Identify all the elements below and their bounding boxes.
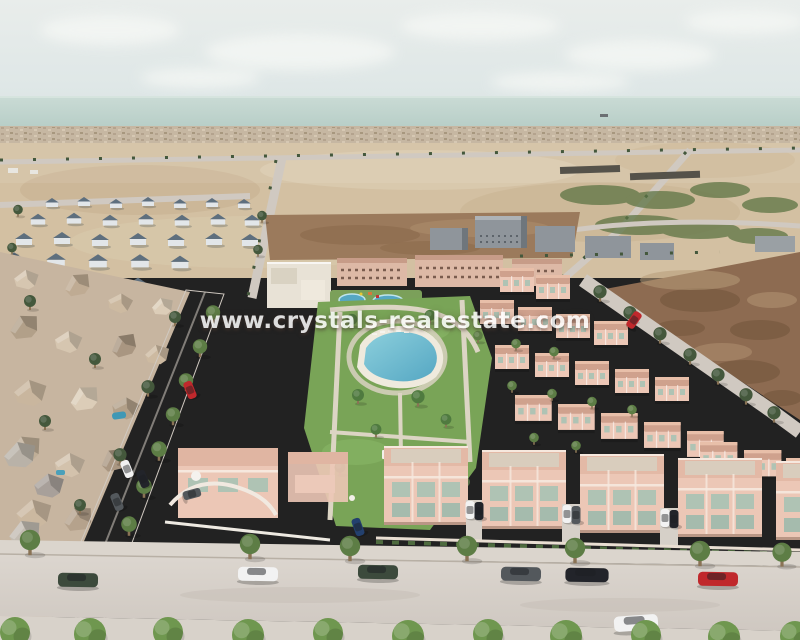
lagoon-pool <box>357 326 443 388</box>
patio-umbrella <box>191 471 201 481</box>
parked-car <box>500 567 542 586</box>
parked-car <box>237 567 279 586</box>
real-estate-aerial-photo: www.crystals-realestate.com <box>0 0 800 640</box>
watermark: www.crystals-realestate.com <box>200 308 591 334</box>
left-front-villa <box>165 448 348 540</box>
sky <box>0 0 800 102</box>
parked-car <box>564 568 610 587</box>
backyard-pool <box>56 470 65 475</box>
parasol <box>349 495 355 501</box>
parked-car <box>57 573 99 592</box>
white-villa-complex <box>267 262 331 308</box>
sea <box>0 96 800 130</box>
parked-car <box>697 572 739 591</box>
soil-field <box>265 212 580 260</box>
parked-car <box>357 565 399 584</box>
ship <box>600 114 608 117</box>
